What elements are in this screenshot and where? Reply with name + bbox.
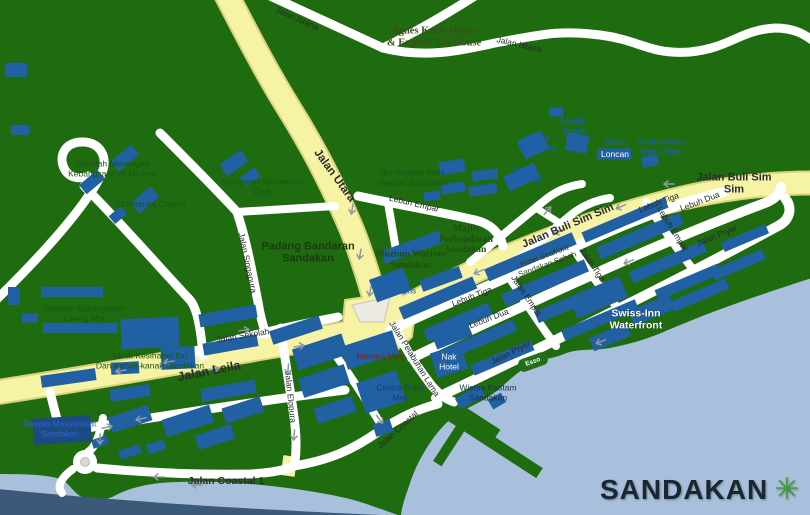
roundabout [73, 450, 97, 474]
sandakan-logo-text: SANDAKAN [600, 474, 768, 506]
map-canvas[interactable]: Agnes Keith House & English Tea House Ja… [0, 0, 810, 515]
map-graphics [0, 0, 810, 515]
flower-icon: ✳ [774, 472, 799, 507]
sandakan-logo: SANDAKAN ✳ [600, 472, 799, 507]
